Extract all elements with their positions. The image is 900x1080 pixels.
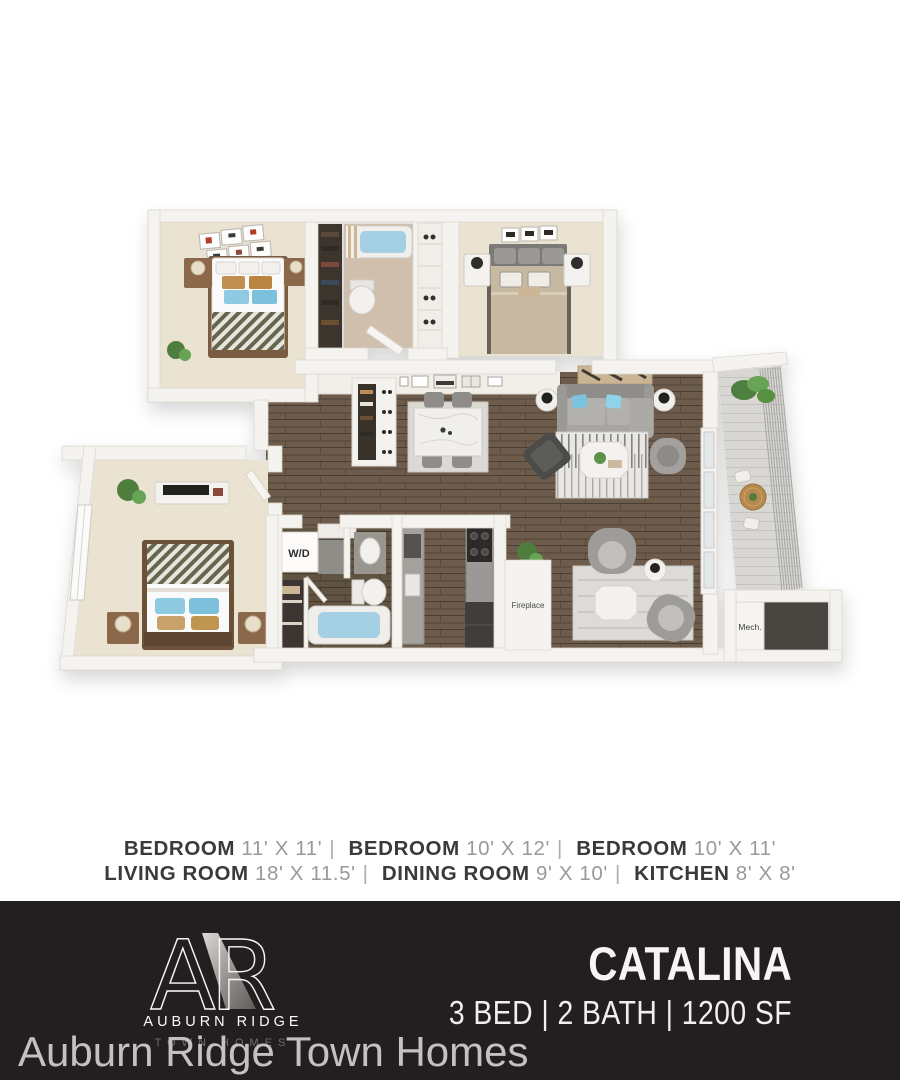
barrel-chair bbox=[588, 528, 636, 574]
accent-chair bbox=[650, 438, 686, 474]
kitchen-counter-strip bbox=[307, 372, 560, 394]
lamp bbox=[659, 393, 670, 404]
plan-name: CATALINA bbox=[588, 936, 792, 991]
room-dims: 18' X 11.5' bbox=[255, 862, 356, 885]
room-dims: 11' X 11' bbox=[241, 837, 322, 860]
bath2-water bbox=[318, 612, 380, 638]
lamp bbox=[650, 563, 660, 573]
fireplace-label: Fireplace bbox=[512, 601, 545, 610]
bed1 bbox=[208, 256, 288, 358]
dining-chair bbox=[452, 392, 472, 408]
room-dims: 10' X 11' bbox=[694, 837, 776, 860]
dining-area bbox=[408, 392, 488, 472]
dishwasher bbox=[404, 534, 421, 558]
room-name: KITCHEN bbox=[634, 862, 729, 885]
separator: | bbox=[550, 837, 570, 860]
room-name: BEDROOM bbox=[124, 837, 235, 860]
walkin-closet-floor bbox=[418, 224, 442, 348]
separator: | bbox=[608, 862, 628, 885]
separator: | bbox=[356, 862, 376, 885]
coffee-table bbox=[580, 442, 628, 478]
lamp bbox=[571, 257, 583, 269]
toilet bbox=[362, 579, 386, 605]
lamp bbox=[245, 616, 261, 632]
floorplan-rendering: W/D bbox=[0, 0, 900, 900]
room-name: DINING ROOM bbox=[382, 862, 530, 885]
lamp bbox=[542, 393, 553, 404]
mech-closet: Mech. bbox=[736, 602, 828, 652]
lamp bbox=[191, 261, 205, 275]
room-dims: 8' X 8' bbox=[736, 862, 796, 885]
bed3 bbox=[142, 540, 234, 650]
monogram-r: R bbox=[210, 922, 277, 1012]
lamp bbox=[471, 257, 483, 269]
watermark: Auburn Ridge Town Homes bbox=[18, 1028, 529, 1076]
floorplan-svg: W/D bbox=[0, 0, 900, 900]
separator: | bbox=[322, 837, 342, 860]
plan-specs: 3 BED | 2 BATH | 1200 SF bbox=[449, 994, 792, 1032]
wall-art-frames bbox=[502, 226, 557, 242]
dining-chair bbox=[424, 392, 444, 408]
nook-table bbox=[595, 586, 637, 620]
cabinet bbox=[318, 540, 344, 574]
sofa bbox=[557, 384, 654, 438]
bath-water bbox=[360, 231, 406, 253]
toilet bbox=[349, 286, 375, 314]
room-dims: 10' X 12' bbox=[466, 837, 550, 860]
lamp bbox=[290, 261, 302, 273]
logo-monogram: A R bbox=[138, 922, 308, 1012]
room-name: BEDROOM bbox=[576, 837, 687, 860]
dimensions-line-2: LIVING ROOM 18' X 11.5'| DINING ROOM 9' … bbox=[0, 861, 900, 886]
shower-curtain bbox=[346, 226, 360, 258]
bed2 bbox=[487, 244, 571, 354]
room-name: BEDROOM bbox=[349, 837, 460, 860]
entry-closet bbox=[352, 378, 396, 466]
washer-dryer-label: W/D bbox=[288, 548, 309, 560]
mech-label: Mech. bbox=[738, 622, 761, 632]
mech-interior bbox=[764, 602, 828, 650]
lamp bbox=[115, 616, 131, 632]
kitchen-sink bbox=[405, 574, 420, 596]
stove bbox=[467, 528, 492, 562]
flyer-page: W/D bbox=[0, 0, 900, 1080]
sink bbox=[360, 538, 380, 564]
sliding-glass-door bbox=[701, 428, 717, 594]
tv-console bbox=[155, 482, 229, 504]
room-dimensions: BEDROOM 11' X 11'| BEDROOM 10' X 12'| BE… bbox=[0, 836, 900, 886]
dimensions-line-1: BEDROOM 11' X 11'| BEDROOM 10' X 12'| BE… bbox=[0, 836, 900, 861]
hall-closet-interior bbox=[318, 224, 342, 348]
room-dims: 9' X 10' bbox=[536, 862, 608, 885]
room-name: LIVING ROOM bbox=[104, 862, 248, 885]
